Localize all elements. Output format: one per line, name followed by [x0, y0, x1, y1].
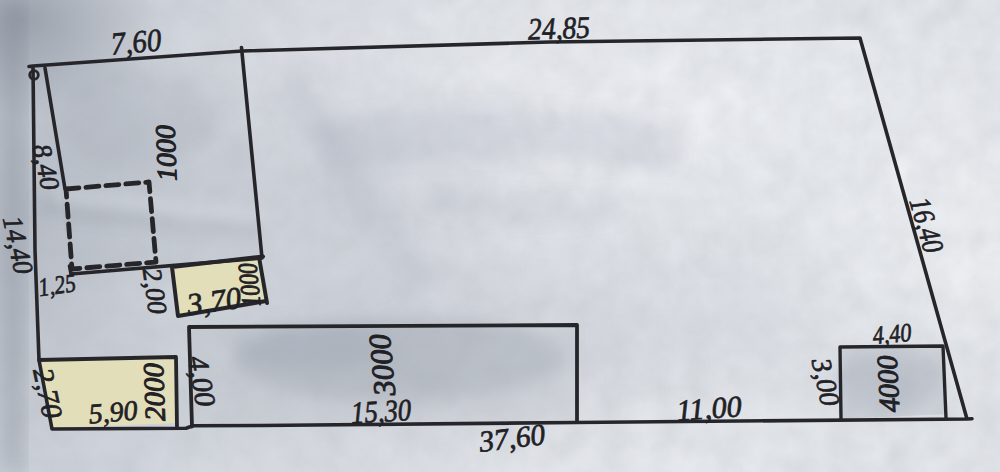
svg-text:5,90: 5,90 — [87, 394, 139, 429]
svg-text:2,00: 2,00 — [137, 266, 174, 316]
svg-text:4,40: 4,40 — [872, 318, 913, 349]
svg-text:7,60: 7,60 — [109, 22, 162, 62]
svg-text:3000: 3000 — [362, 332, 402, 398]
svg-text:1000: 1000 — [150, 124, 183, 181]
svg-text:1000: 1000 — [232, 262, 266, 309]
svg-text:15,30: 15,30 — [350, 392, 412, 429]
svg-text:24,85: 24,85 — [527, 10, 590, 46]
svg-text:4000: 4000 — [870, 355, 905, 413]
svg-text:2000: 2000 — [137, 362, 171, 422]
svg-text:1,25: 1,25 — [37, 268, 78, 301]
svg-text:11,00: 11,00 — [675, 389, 742, 426]
